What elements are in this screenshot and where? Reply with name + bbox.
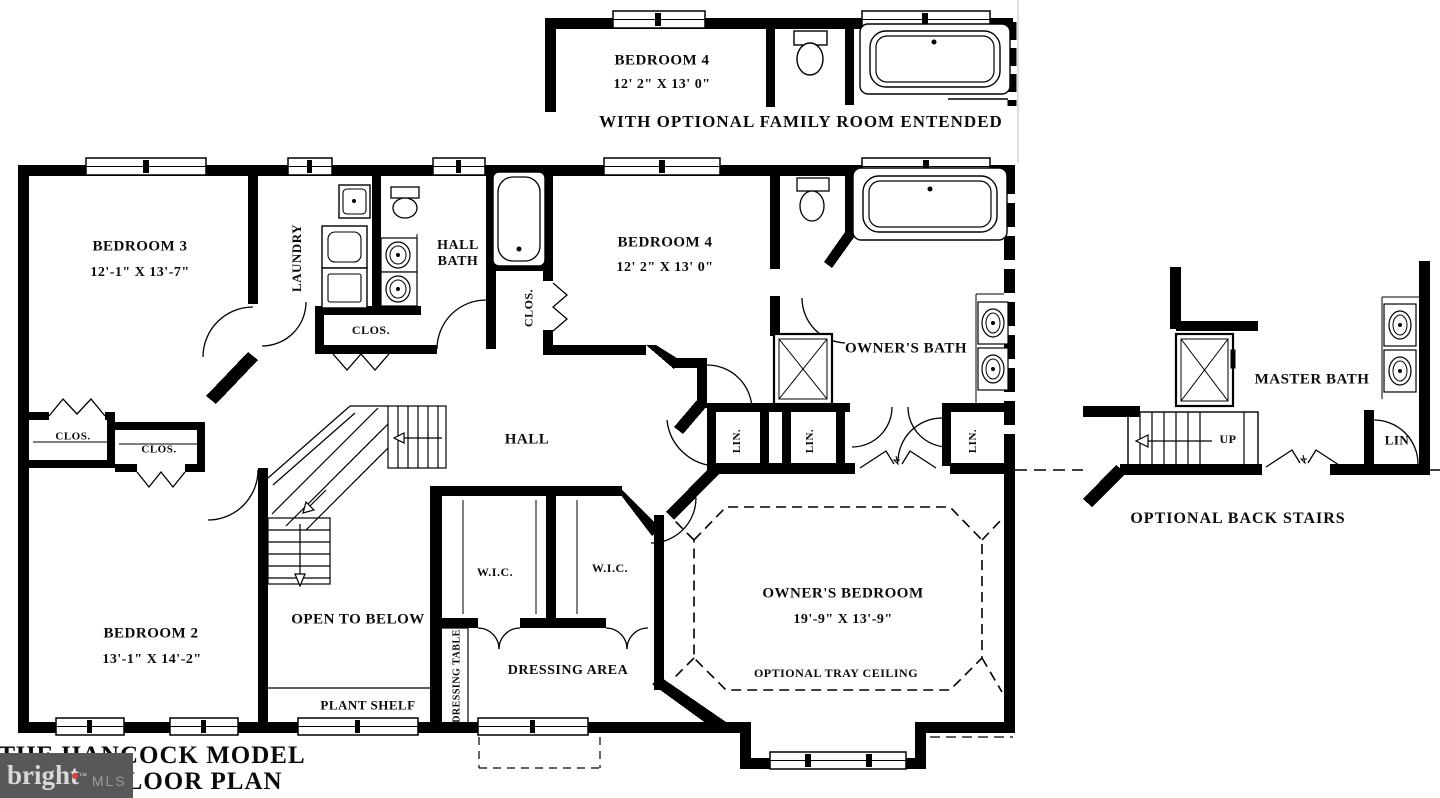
watermark-brand-text: bright: [7, 762, 79, 789]
sink-icon-master-bath: [1384, 304, 1416, 392]
bathtub-icon-hall-bath: [493, 172, 545, 266]
watermark-mls-text: MLS: [92, 773, 127, 789]
room-label-bedroom3: BEDROOM 3: [93, 238, 188, 255]
scan-artifact-line: [1017, 0, 1019, 163]
bedroom2-door-arc: [208, 470, 258, 520]
owners-bath-door-arc-left: [852, 407, 892, 447]
label-plant-shelf: PLANT SHELF: [320, 699, 415, 714]
linen-label-3: LIN.: [967, 429, 979, 453]
label-dressing-area: DRESSING AREA: [508, 663, 628, 679]
closet-shelf-lines: [33, 234, 1419, 614]
shower-icon-owners-bath: [774, 334, 832, 404]
room-label-laundry: LAUNDRY: [289, 224, 305, 292]
lin3-door-arc: [898, 418, 942, 462]
room-label-owners-bath: OWNER'S BATH: [845, 340, 967, 357]
watermark-red-dot-icon: [72, 773, 78, 779]
closet-label-1: CLOS.: [55, 431, 90, 444]
sink-icon-hall-bath: [381, 238, 417, 306]
wic-label-2: W.I.C.: [592, 562, 628, 576]
wic1-door-arc-b: [499, 628, 520, 649]
laundry-sink-icon: [339, 185, 370, 218]
bathtub-icon-owners-bath: [853, 168, 1007, 240]
room-dims-bedroom4-optional: 12' 2" X 13' 0": [614, 77, 711, 93]
bifold-doors: [49, 283, 1342, 487]
closet-label-4: CLOS.: [522, 289, 537, 327]
label-up: UP: [1220, 433, 1237, 447]
wic2-door-arc-b: [627, 628, 648, 649]
hallbath-closet-bifold: [553, 283, 567, 331]
room-label-master-bath: MASTER BATH: [1255, 371, 1370, 388]
room-dims-bedroom4: 12' 2" X 13' 0": [617, 260, 714, 276]
room-label-bedroom4: BEDROOM 4: [618, 234, 713, 251]
label-open-to-below: OPEN TO BELOW: [291, 611, 424, 628]
label-tray-ceiling: OPTIONAL TRAY CEILING: [754, 667, 918, 681]
main-stairs: [268, 406, 446, 586]
closet-label-2: CLOS.: [141, 444, 176, 457]
wic1-door-arc-a: [478, 628, 499, 649]
bedroom3-door-arc: [203, 307, 253, 357]
back-double-door-left: [1266, 450, 1300, 467]
wic2-door-arc-a: [606, 628, 627, 649]
laundry-closet-bifold: [333, 354, 389, 370]
bright-mls-watermark: bright™ MLS: [0, 753, 133, 798]
room-label-owners-bedroom: OWNER'S BEDROOM: [762, 585, 923, 602]
bathtub-icon-optional: [860, 24, 1010, 94]
linen-label-1: LIN.: [731, 429, 743, 453]
closet1-bifold: [49, 399, 105, 416]
room-label-bedroom4-optional: BEDROOM 4: [615, 52, 710, 69]
floor-plan-page: BEDROOM 4 12' 2" X 13' 0" WITH OPTIONAL …: [0, 0, 1440, 798]
wic-label-1: W.I.C.: [477, 566, 513, 580]
plan-title-line2: FLOOR PLAN: [109, 768, 282, 796]
room-dims-bedroom3: 12'-1" X 13'-7": [90, 265, 189, 281]
linen-label-2: LIN.: [804, 429, 816, 453]
toilet-icon-optional: [794, 31, 827, 75]
closet2-bifold: [137, 472, 185, 487]
shower-icon-master-bath: [1176, 334, 1235, 406]
laundry-door-arc: [262, 302, 306, 346]
toilet-icon-hall-bath: [391, 187, 419, 218]
washer-icon: [322, 226, 367, 268]
caption-optional-back-stairs: OPTIONAL BACK STAIRS: [1130, 510, 1345, 528]
room-dims-owners-bedroom: 19'-9" X 13'-9": [793, 612, 892, 628]
sink-icon-owners-bath: [978, 302, 1008, 390]
owners-double-door-right: [902, 451, 936, 468]
back-stairs: [1128, 412, 1258, 466]
room-label-bedroom2: BEDROOM 2: [104, 625, 199, 642]
closet-label-3: CLOS.: [352, 324, 390, 338]
hall-bath-door-arc: [437, 300, 486, 349]
door-break-mark-2: [1301, 455, 1307, 463]
label-dressing-table: DRESSING TABLE: [452, 629, 463, 723]
dryer-icon: [322, 268, 367, 308]
toilet-icon-owners-bath: [797, 178, 829, 221]
door-break-mark: [894, 456, 900, 464]
linen-label-master: LIN: [1385, 434, 1410, 449]
owners-double-door-left: [860, 451, 894, 468]
room-dims-bedroom2: 13'-1" X 14'-2": [102, 652, 201, 668]
room-label-hall-bath: HALL BATH: [422, 238, 494, 270]
room-label-hall: HALL: [505, 431, 550, 448]
caption-optional-family-room: WITH OPTIONAL FAMILY ROOM ENTENDED: [599, 112, 1003, 132]
watermark-tm-mark: ™: [79, 771, 87, 780]
